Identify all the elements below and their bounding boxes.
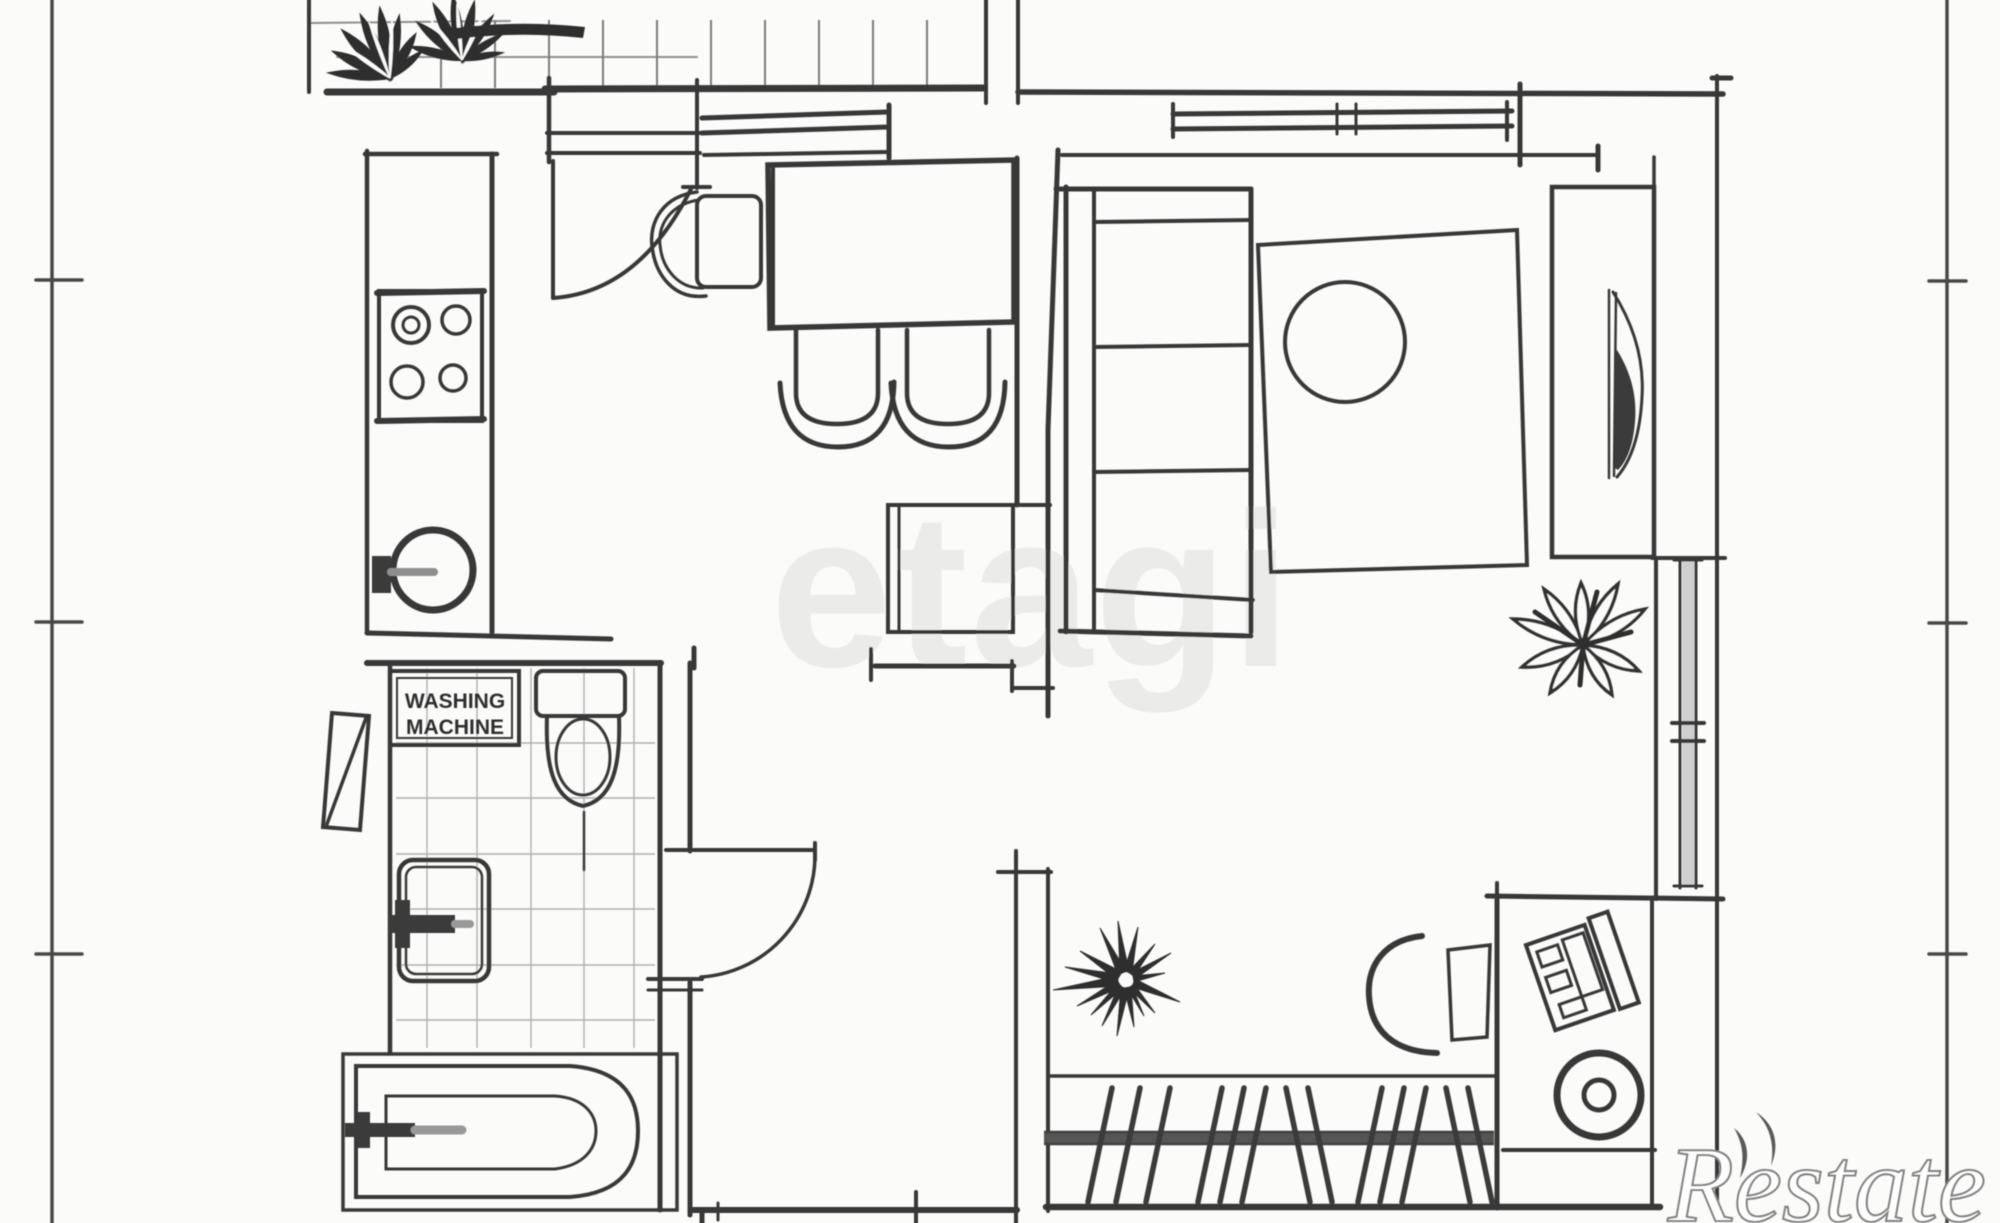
svg-text:MACHINE: MACHINE <box>406 716 504 739</box>
svg-text:Restate: Restate <box>1667 1126 1986 1223</box>
svg-text:WASHING: WASHING <box>405 690 505 713</box>
